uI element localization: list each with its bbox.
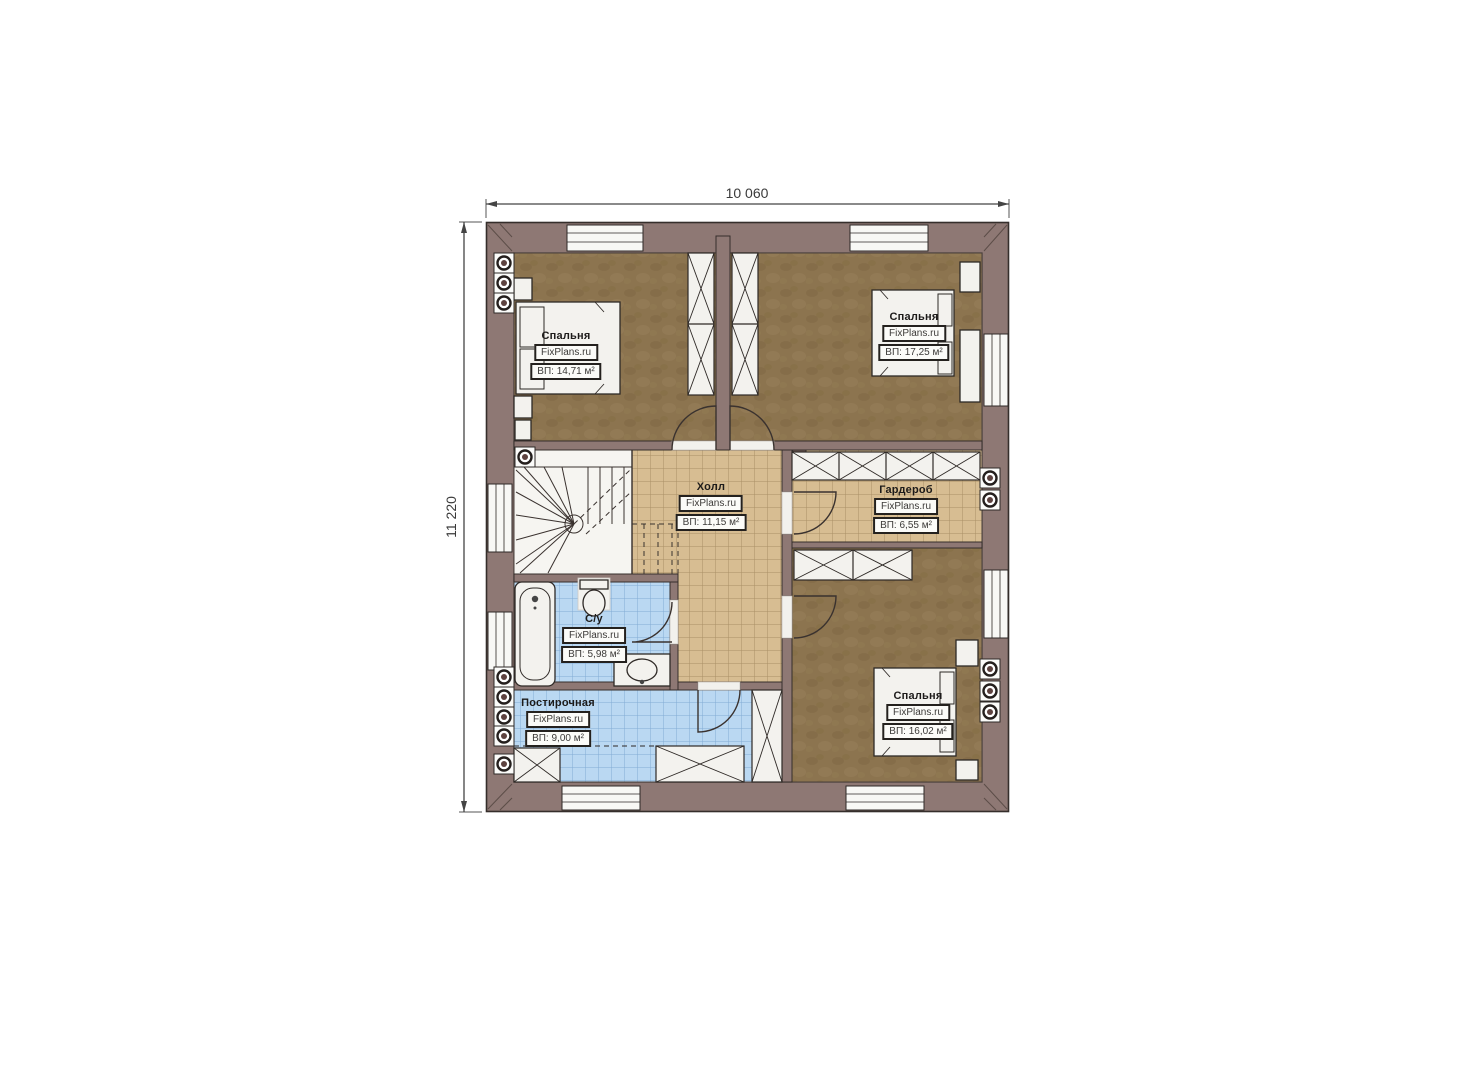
floor-stairs [514,450,632,574]
vent-icon [494,687,514,707]
closet-laundry-center [656,746,744,782]
vent-icon [494,293,514,313]
sink [614,654,670,686]
dimension-top: 10 060 [486,185,1009,218]
floor-plan-page: 10 060 11 220 [0,0,1473,1080]
vent-icon [494,253,514,273]
window-right-1 [984,334,1008,406]
closet-laundry-left [514,748,560,782]
vent-icon [494,707,514,727]
window-right-2 [984,570,1008,638]
dimension-height-label: 11 220 [443,496,459,538]
vent-icon [494,667,514,687]
window-left-2 [488,612,512,670]
dimension-left: 11 220 [443,222,482,812]
window-top-2 [850,225,928,251]
floor-plan-drawing: 10 060 11 220 [0,0,1473,1080]
vent-icon [980,681,1000,701]
window-left-1 [488,484,512,552]
closet-laundry-tall [752,690,782,782]
vent-icon [980,468,1000,488]
vent-icon [494,273,514,293]
closet-bedroom-br [794,550,912,580]
vent-icon [980,702,1000,722]
closet-center-right [732,253,758,395]
vent-icon [980,659,1000,679]
vent-icon [494,726,514,746]
window-top-1 [567,225,643,251]
vent-icon [494,754,514,774]
vent-icon [515,447,535,467]
window-bottom-2 [846,786,924,810]
dimension-width-label: 10 060 [726,185,769,201]
bathtub [515,582,555,686]
closet-wardrobe-top [792,452,980,480]
closet-center-left [688,253,714,395]
window-bottom-1 [562,786,640,810]
vent-icon [980,490,1000,510]
toilet [578,578,610,616]
